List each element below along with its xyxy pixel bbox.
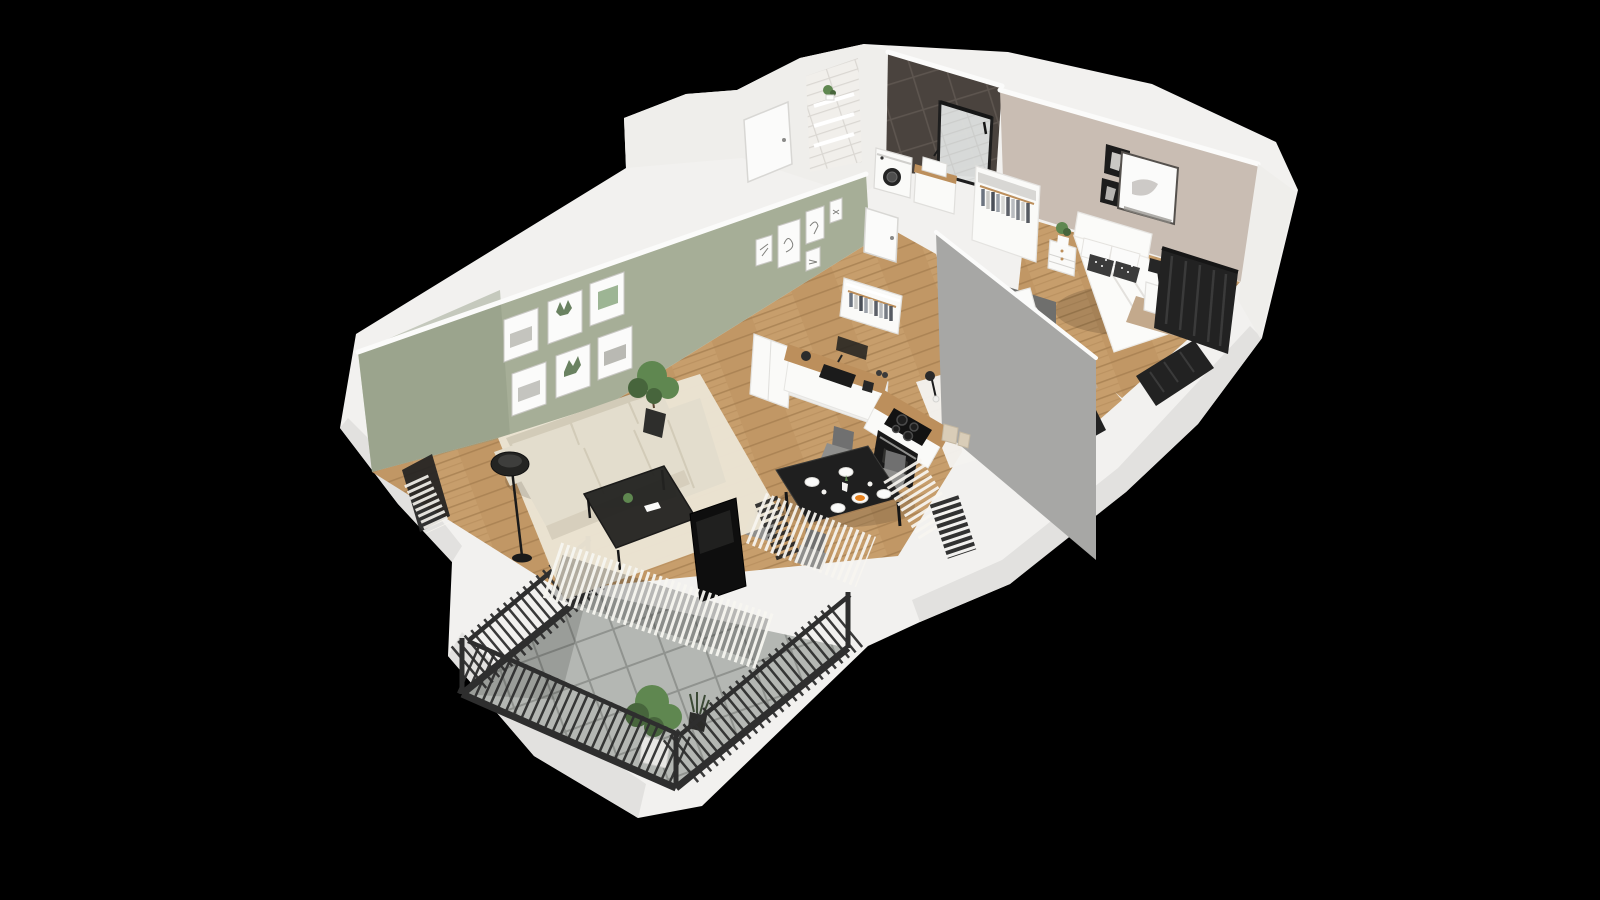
entry-door-handle: [782, 138, 786, 142]
orange-dish: [855, 495, 865, 501]
table-plant: [623, 493, 633, 503]
door-handle: [890, 236, 894, 240]
kettle-icon: [801, 351, 811, 361]
tv-panel: [690, 498, 746, 602]
boxes: [942, 424, 958, 444]
bathroom-door: [864, 208, 898, 262]
floorplan-stage: [0, 0, 1600, 900]
floorplan-render: [0, 0, 1600, 900]
